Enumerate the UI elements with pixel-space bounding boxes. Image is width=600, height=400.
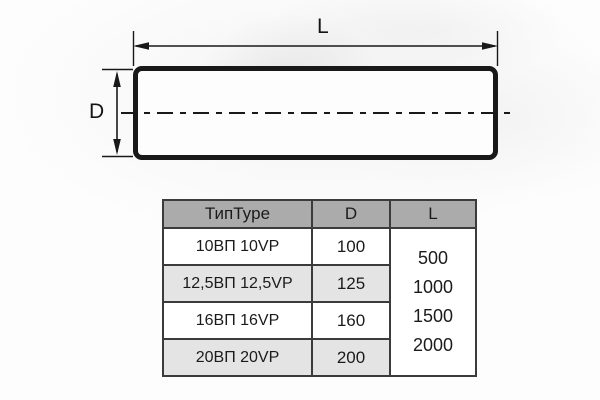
- table-row: 10ВП 10VP 100 500 1000 1500 2000: [163, 228, 476, 265]
- d-cell: 100: [312, 228, 390, 265]
- header-type: ТипType: [163, 200, 312, 228]
- spec-table: ТипType D L 10ВП 10VP 100 500 1000 1500 …: [162, 199, 477, 377]
- type-cell: 20ВП 20VP: [163, 339, 312, 376]
- dimension-lines-layer: [0, 0, 600, 190]
- technical-drawing-page: L D ТипType D L 10ВП 10VP 100 500 1000 1…: [0, 0, 600, 400]
- l-arrowhead-right-icon: [482, 42, 498, 50]
- type-cell: 12,5ВП 12,5VP: [163, 265, 312, 302]
- d-cell: 160: [312, 302, 390, 339]
- l-value: 2000: [391, 331, 475, 360]
- d-cell: 125: [312, 265, 390, 302]
- type-cell: 10ВП 10VP: [163, 228, 312, 265]
- length-dimension-label: L: [317, 16, 329, 37]
- d-arrowhead-bottom-icon: [113, 139, 121, 155]
- l-value: 500: [391, 244, 475, 273]
- header-d: D: [312, 200, 390, 228]
- header-l: L: [390, 200, 476, 228]
- l-value: 1500: [391, 302, 475, 331]
- d-cell: 200: [312, 339, 390, 376]
- diameter-dimension-label: D: [89, 101, 104, 122]
- d-arrowhead-top-icon: [113, 71, 121, 87]
- l-arrowhead-left-icon: [133, 42, 149, 50]
- l-value: 1000: [391, 273, 475, 302]
- l-values-cell: 500 1000 1500 2000: [390, 228, 476, 376]
- type-cell: 16ВП 16VP: [163, 302, 312, 339]
- spec-table-header-row: ТипType D L: [163, 200, 476, 228]
